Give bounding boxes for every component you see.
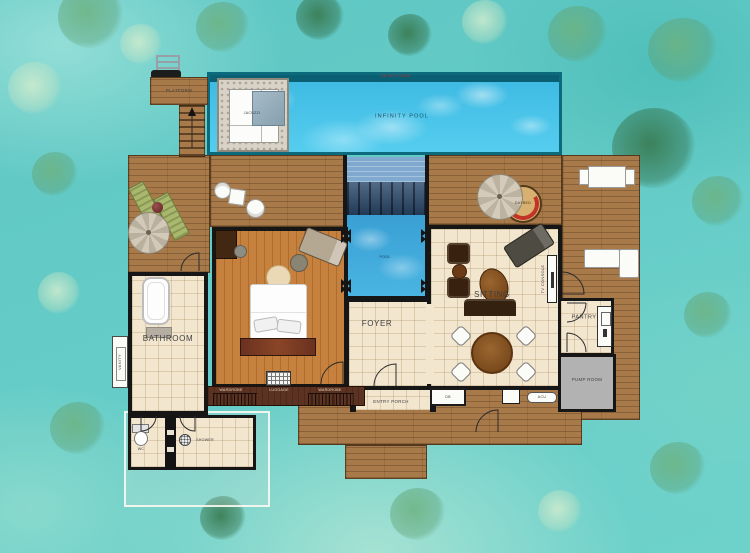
coral-icon — [650, 442, 706, 494]
floor-plan-canvas: INFINITY EDGE INFINITY POOL JACUZZI PLAT… — [0, 0, 750, 553]
infinity-pool-label: INFINITY POOL — [375, 113, 429, 119]
umbrella-pole — [146, 230, 151, 235]
side-table — [452, 264, 467, 279]
utility-box — [502, 389, 520, 404]
stairs — [179, 105, 205, 157]
pantry-label: PANTRY — [572, 314, 597, 320]
foyer-sitting-opening — [426, 304, 434, 384]
foyer-label: FOYER — [362, 320, 393, 328]
coral-icon — [648, 18, 718, 82]
armchair — [447, 277, 470, 298]
coral-icon — [32, 152, 78, 196]
coral-icon — [50, 402, 106, 454]
coral-icon — [684, 292, 732, 338]
plunge-pool-steps — [347, 182, 425, 215]
tv-console — [547, 255, 557, 303]
writing-desk — [215, 230, 237, 259]
jacuzzi-tub — [252, 91, 285, 126]
outdoor-chair — [579, 169, 589, 185]
deck-ball-table — [152, 202, 163, 213]
coral-icon — [388, 14, 432, 56]
pump-room-label: PUMP ROOM — [572, 378, 603, 382]
deck-chair — [246, 199, 265, 218]
coral-icon — [538, 490, 582, 532]
sink-basin — [601, 312, 611, 326]
luggage-rack — [266, 371, 291, 386]
acu-label: ACU — [538, 395, 546, 399]
armchair — [447, 243, 470, 264]
plunge-pool-label: POOL — [379, 255, 390, 259]
infinity-edge-label: INFINITY EDGE — [381, 74, 411, 78]
toilet-bowl — [134, 431, 148, 446]
desk-chair — [234, 245, 247, 258]
tv-icon — [551, 272, 554, 288]
deck-lounger — [619, 249, 639, 278]
coral-icon — [196, 2, 250, 52]
bedhead-console — [240, 338, 316, 356]
db-label: DB — [445, 395, 451, 399]
wardrobe-right-label: WARDROBE — [318, 388, 341, 392]
coral-icon — [8, 62, 62, 114]
jacuzzi-label: JACUZZI — [244, 111, 261, 115]
coral-icon — [390, 488, 446, 540]
deck-table — [228, 188, 246, 206]
hanger-rail-left-icon — [213, 393, 257, 406]
bathtub — [142, 277, 170, 325]
hanger-rail-right-icon — [308, 393, 354, 406]
beach-umbrella-icon — [128, 212, 170, 254]
platform-label: PLATFORM — [166, 89, 192, 93]
coral-icon — [462, 0, 508, 44]
beach-umbrella-icon — [477, 174, 523, 220]
pantry-sink — [597, 306, 612, 347]
tv-console-label: TV CONSOLE — [541, 265, 545, 294]
plunge-pool — [343, 155, 429, 300]
dining-sofa — [464, 299, 516, 316]
pump-room — [558, 354, 616, 412]
shower-head-icon — [179, 434, 191, 446]
sitting-label: SITTING — [474, 291, 510, 299]
shower-label: SHOWER — [196, 438, 214, 442]
coral-icon — [38, 272, 80, 314]
wc-divider-wall — [165, 415, 176, 468]
wc-label: WC — [138, 447, 145, 451]
bathroom-label: BATHROOM — [143, 335, 193, 343]
plunge-pool-shelf — [347, 157, 425, 182]
coral-icon — [296, 0, 344, 40]
sheet-fold — [251, 312, 306, 313]
umbrella-pole — [497, 194, 502, 199]
chaise-side-table — [290, 254, 308, 272]
entry-steps-deck — [345, 445, 427, 479]
coral-icon — [548, 6, 608, 62]
coral-icon — [692, 176, 744, 226]
dining-table — [471, 332, 513, 374]
vanity-label: VANITY — [118, 354, 122, 370]
niche — [167, 447, 174, 452]
bed — [250, 284, 307, 340]
outdoor-dining-table — [588, 166, 626, 188]
faucet-icon — [603, 329, 607, 337]
tub-inner — [147, 282, 165, 320]
outdoor-chair — [625, 169, 635, 185]
niche — [167, 430, 174, 435]
daybed-label: DAYBED — [515, 201, 531, 205]
entry-porch-label: ENTRY PORCH — [373, 400, 409, 404]
coral-icon — [58, 0, 124, 48]
luggage-label: LUGGAGE — [269, 388, 289, 392]
foyer — [345, 298, 431, 390]
wardrobe-left-label: WARDROBE — [219, 388, 242, 392]
pillow — [253, 316, 279, 333]
pillow — [276, 319, 301, 335]
jacuzzi-platform — [217, 78, 289, 152]
deck-lounger — [584, 249, 620, 268]
